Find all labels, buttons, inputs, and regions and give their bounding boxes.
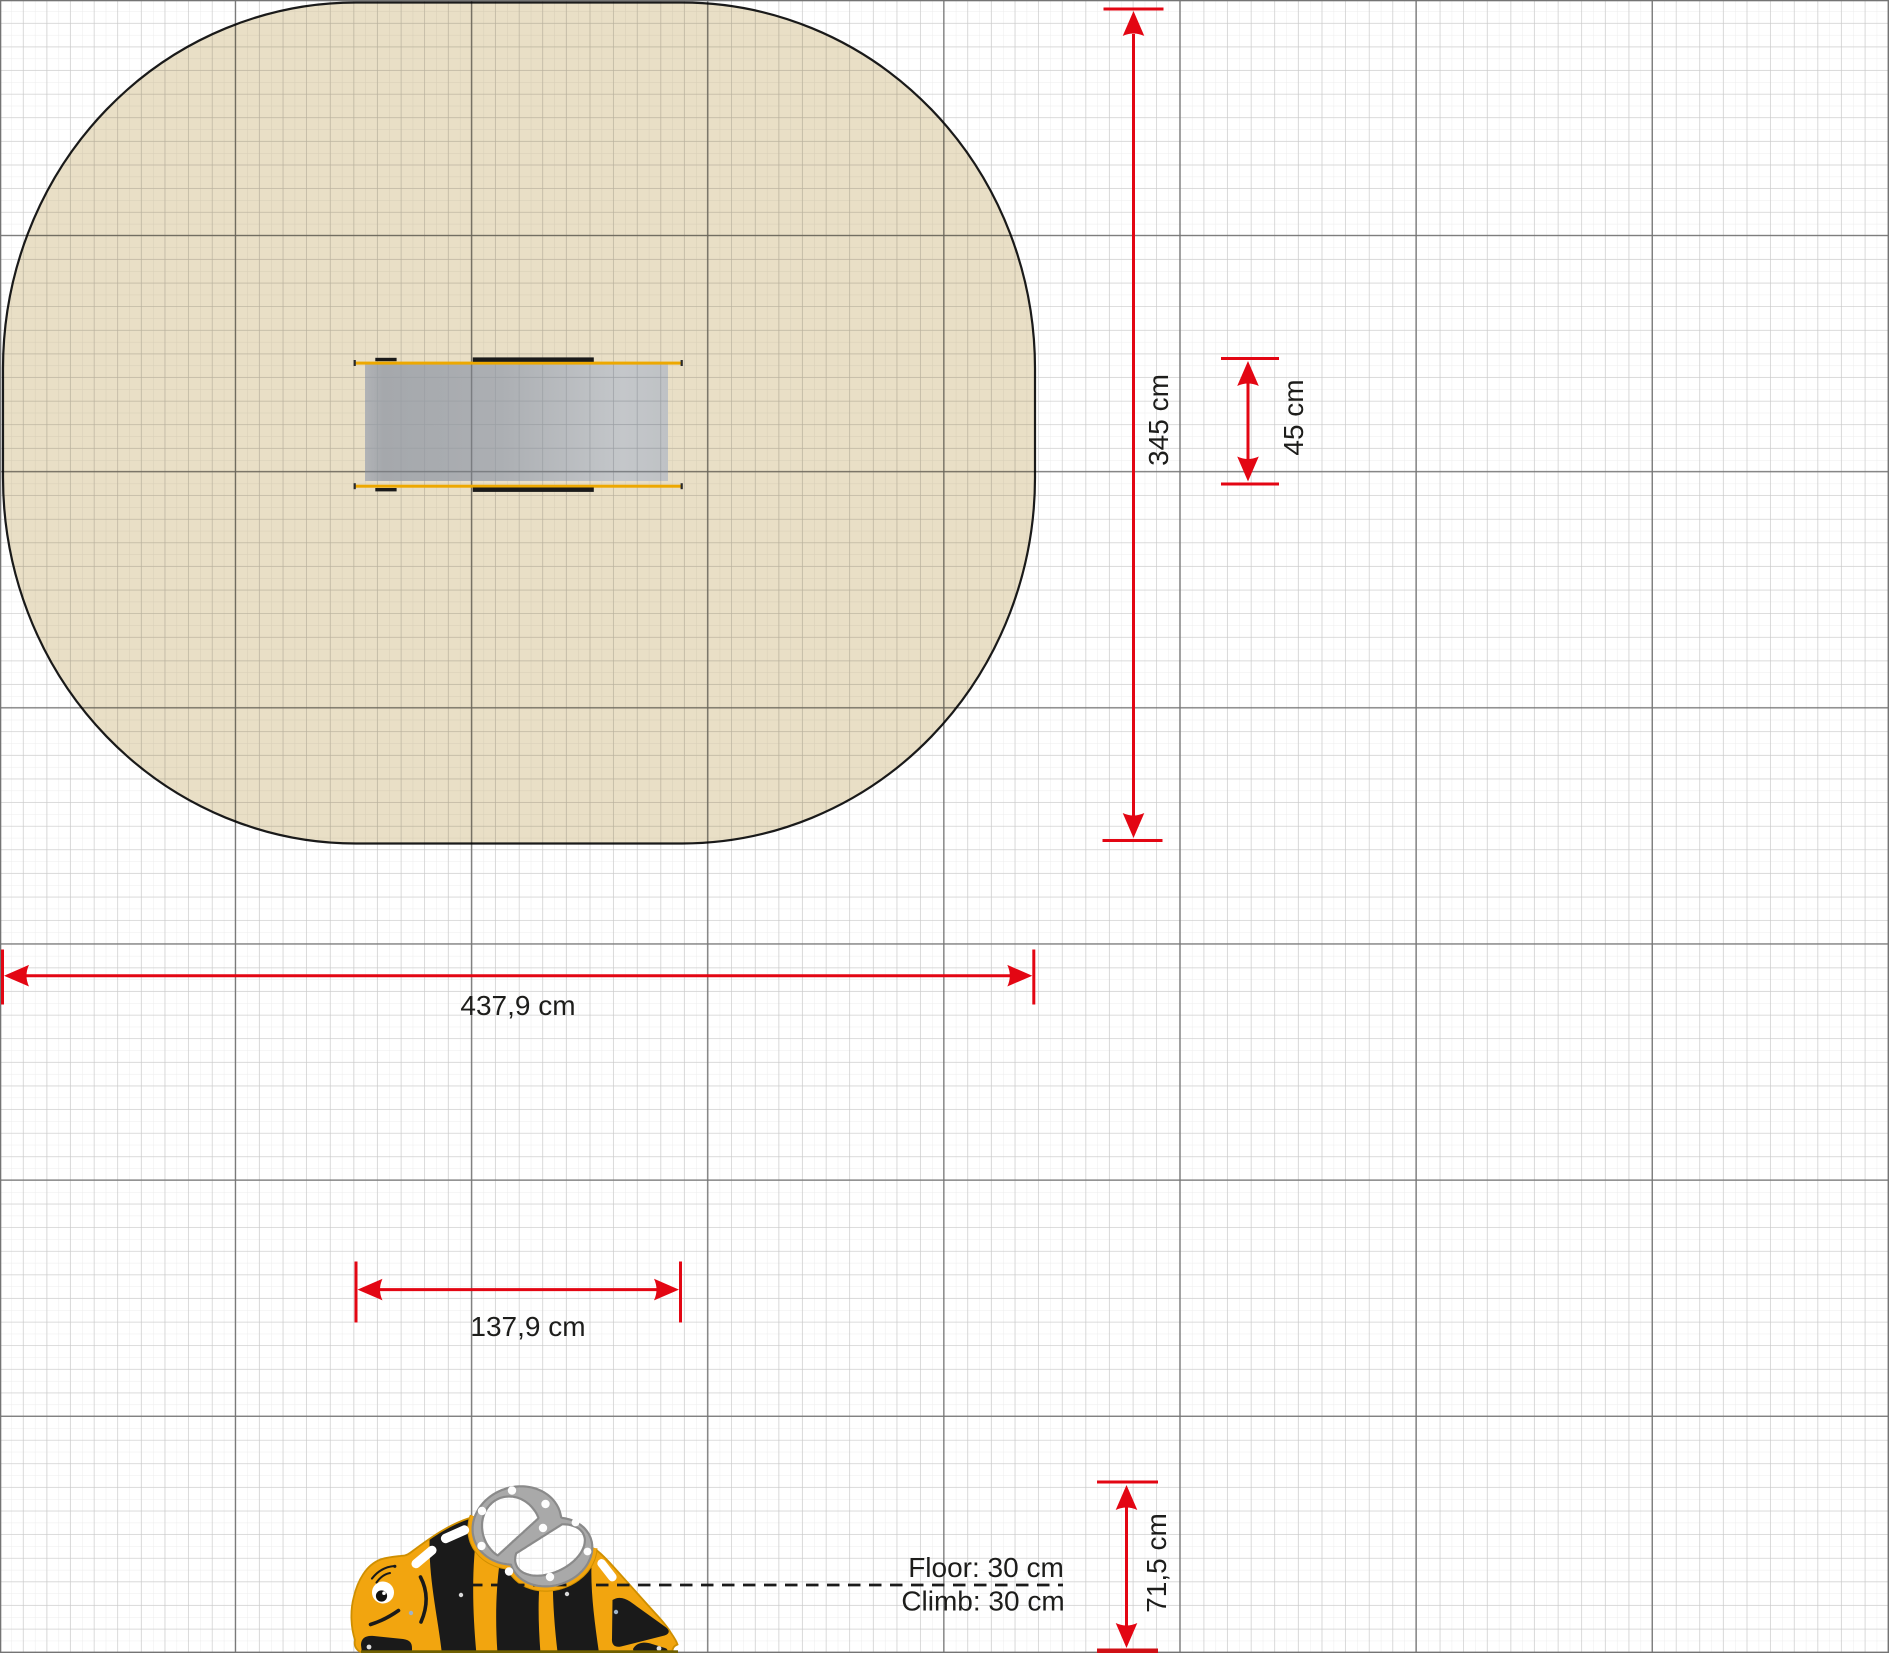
svg-text:Floor: 30 cm: Floor: 30 cm [908,1552,1064,1583]
svg-text:137,9 cm: 137,9 cm [470,1311,585,1342]
svg-text:45 cm: 45 cm [1278,379,1309,455]
svg-text:71,5 cm: 71,5 cm [1141,1513,1172,1613]
svg-text:345 cm: 345 cm [1143,374,1174,466]
svg-text:Climb: 30 cm: Climb: 30 cm [901,1586,1064,1617]
svg-text:437,9 cm: 437,9 cm [460,990,575,1021]
